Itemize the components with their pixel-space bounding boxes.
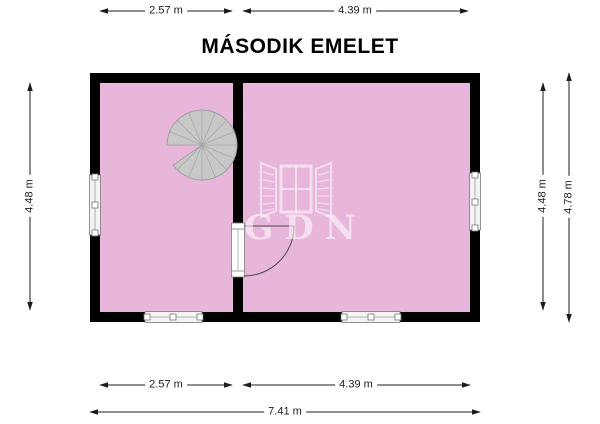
window-right-wall bbox=[470, 172, 481, 231]
dim-label-top-right: 4.39 m bbox=[334, 5, 376, 18]
window-bottom-left bbox=[144, 312, 203, 323]
page-title: MÁSODIK EMELET bbox=[201, 35, 398, 59]
room-floor bbox=[100, 83, 470, 312]
window-bottom-right bbox=[341, 312, 401, 323]
watermark-text: GDN bbox=[233, 208, 367, 248]
interior-wall bbox=[233, 83, 243, 312]
dim-label-right-inner: 4.48 m bbox=[537, 175, 550, 217]
dim-label-bottom-left: 2.57 m bbox=[145, 379, 187, 392]
dim-label-top-left: 2.57 m bbox=[145, 5, 187, 18]
dim-label-left: 4.48 m bbox=[24, 175, 37, 217]
spiral-staircase-icon bbox=[167, 110, 237, 180]
window-left-wall bbox=[90, 174, 101, 236]
outer-wall bbox=[90, 73, 480, 322]
floorplan-canvas: GDN MÁSODIK EMELET 2.57 m 4.39 m 4.48 m … bbox=[0, 0, 600, 424]
dim-label-right-outer: 4.78 m bbox=[563, 176, 576, 218]
dim-label-bottom-right: 4.39 m bbox=[335, 379, 377, 392]
dim-label-bottom-total: 7.41 m bbox=[264, 406, 306, 419]
